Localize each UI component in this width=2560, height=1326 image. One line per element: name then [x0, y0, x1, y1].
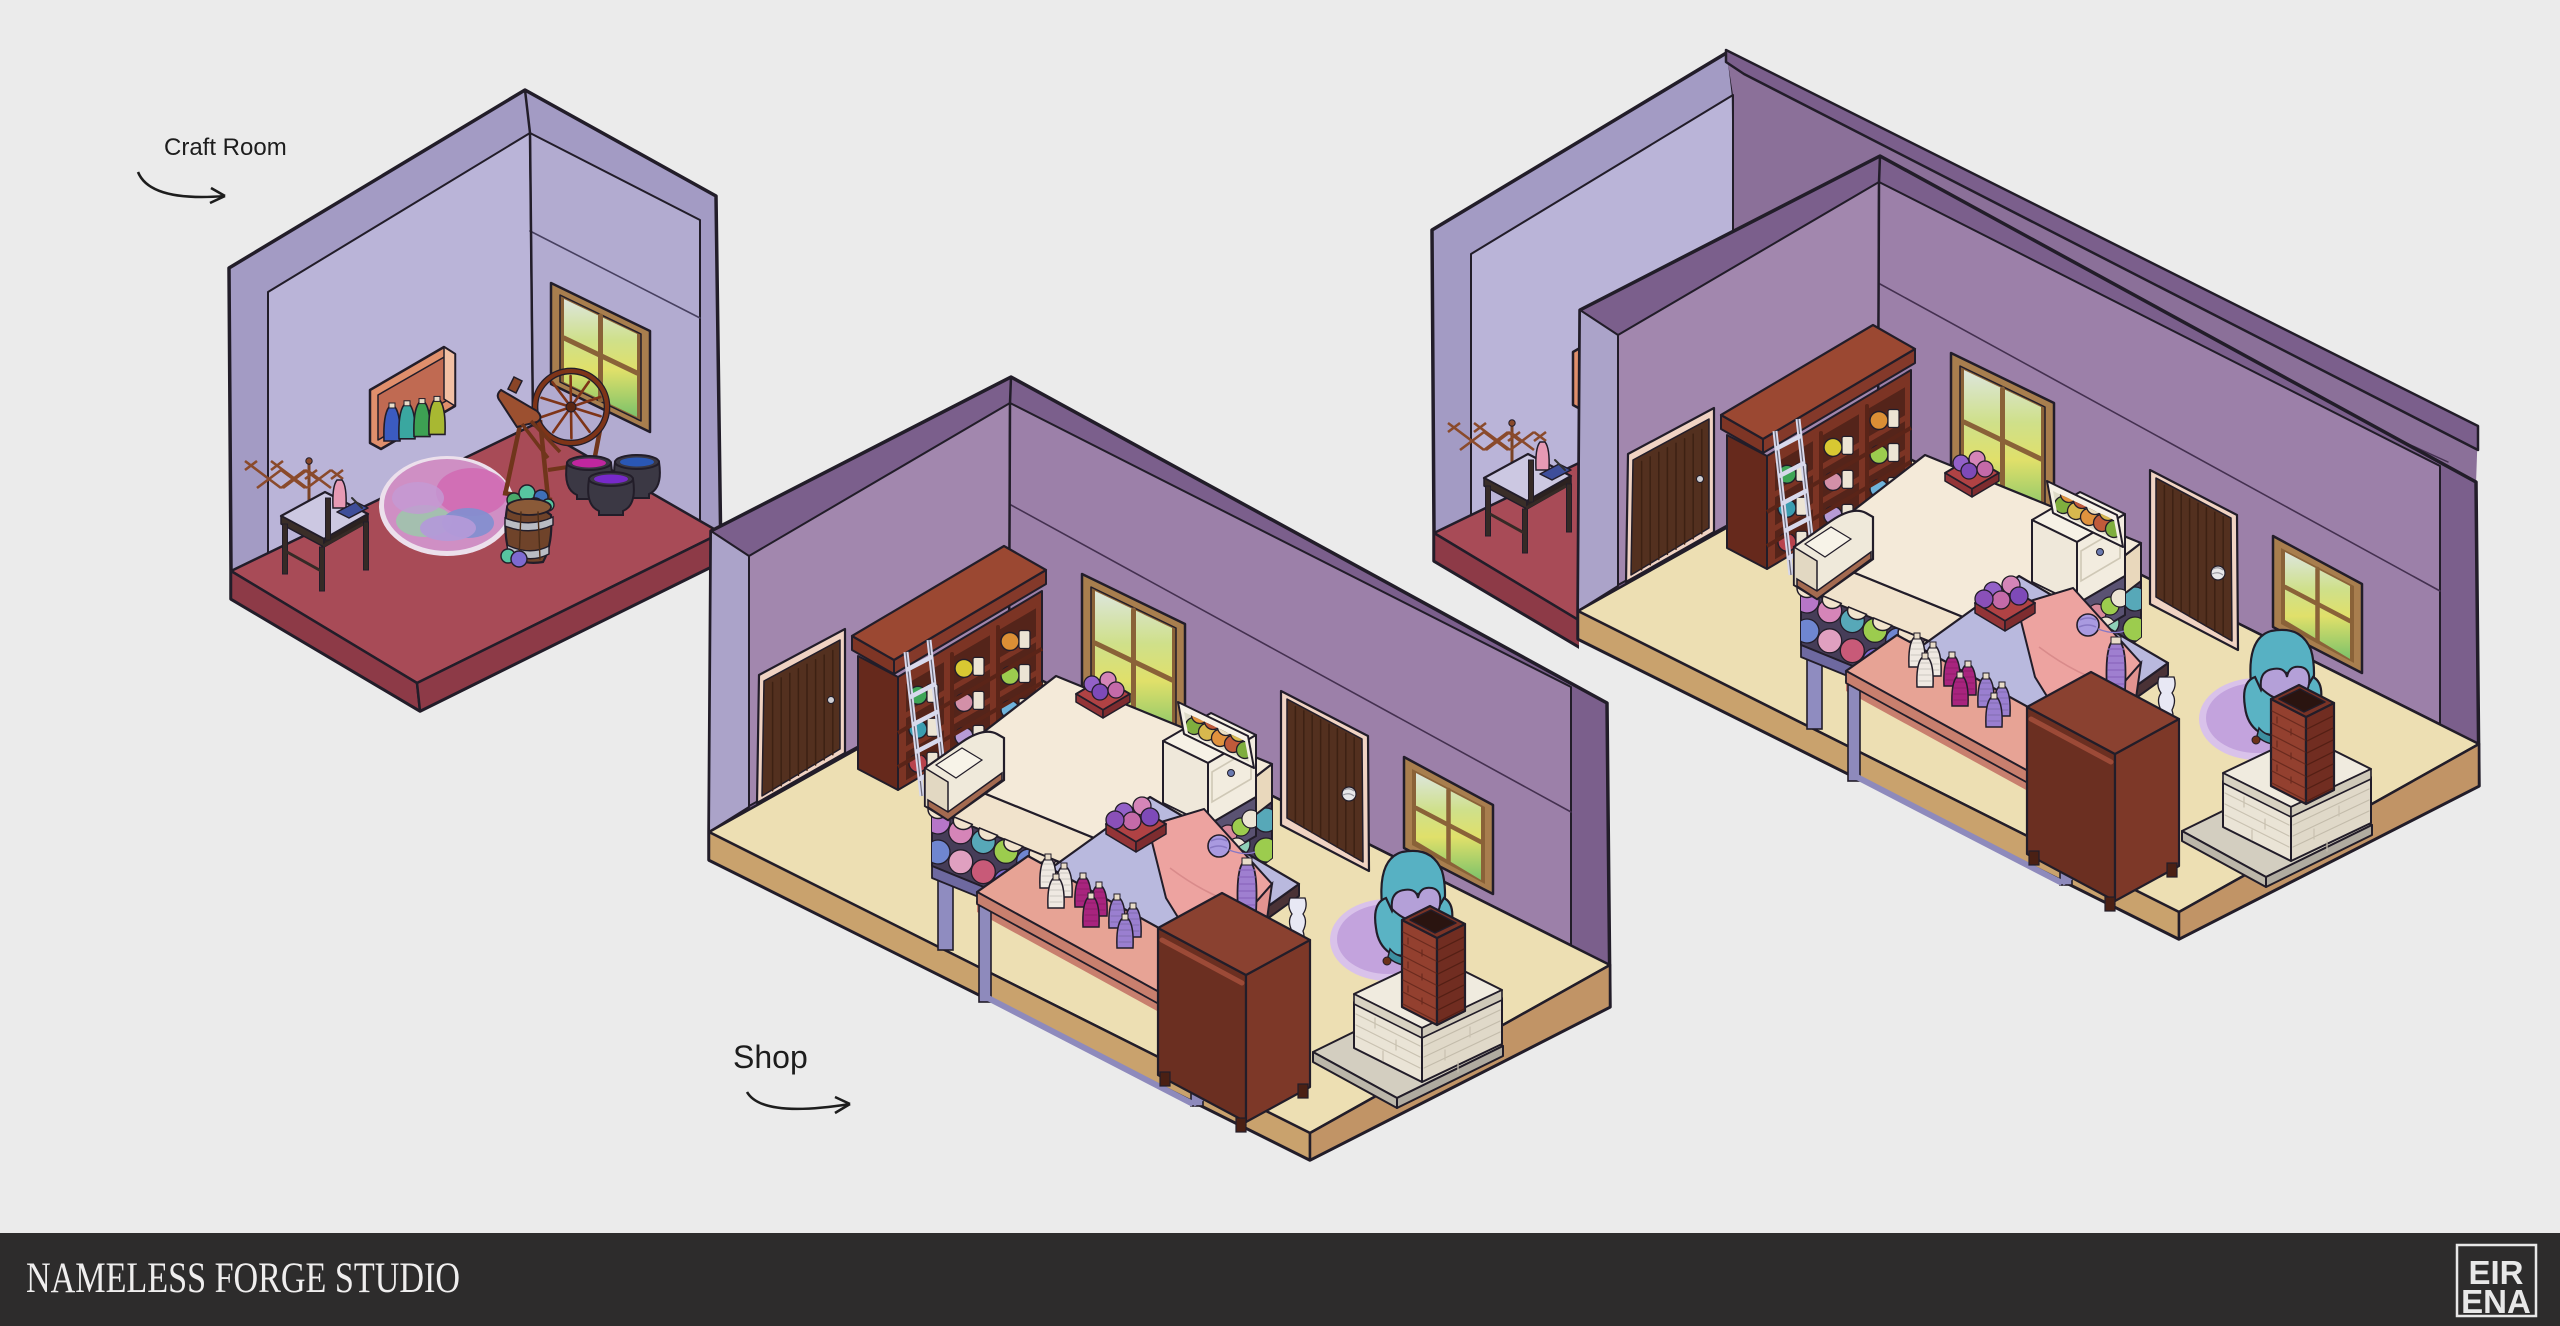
- svg-text:NAMELESS FORGE STUDIO: NAMELESS FORGE STUDIO: [26, 1255, 460, 1302]
- svg-text:Craft Room: Craft Room: [164, 134, 287, 161]
- svg-text:ENA: ENA: [2461, 1283, 2531, 1320]
- svg-text:Shop: Shop: [733, 1039, 808, 1075]
